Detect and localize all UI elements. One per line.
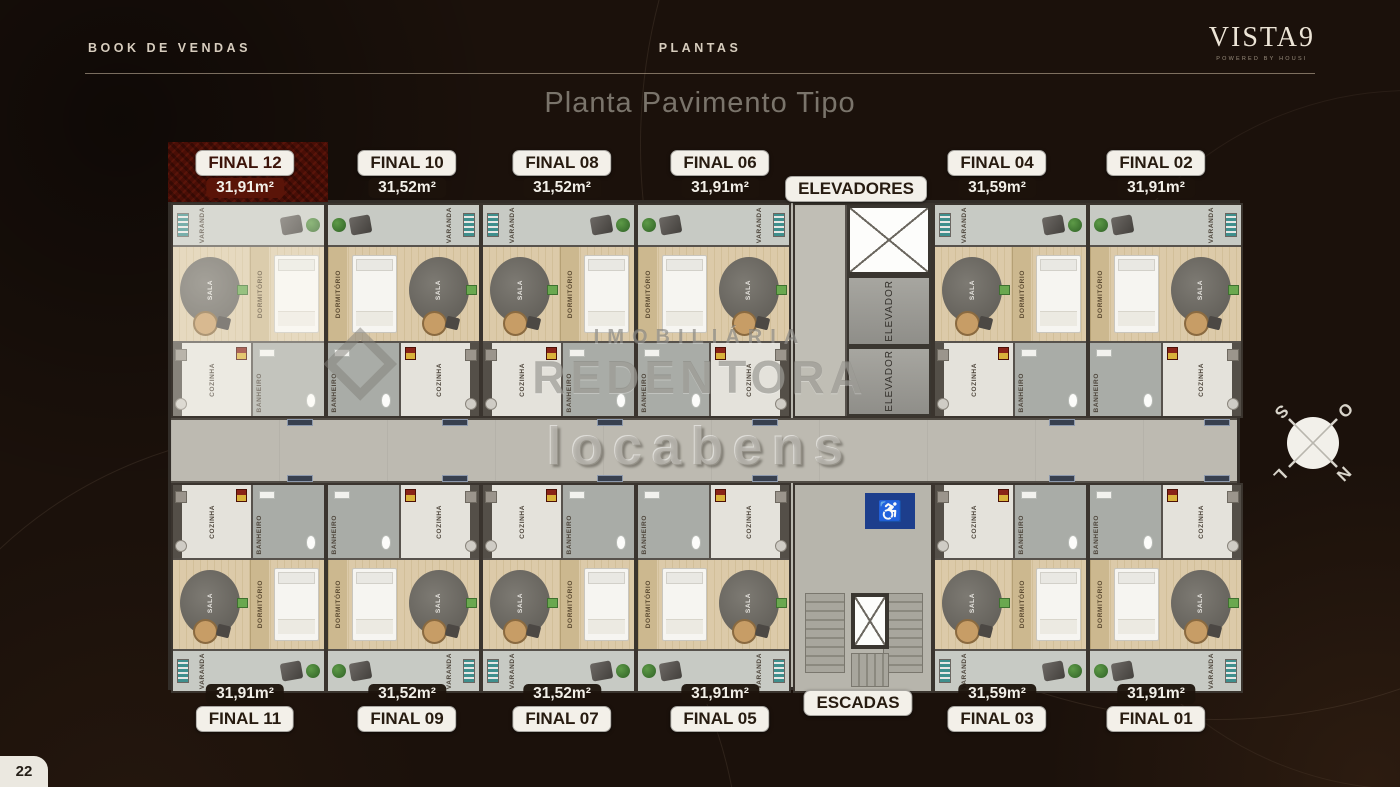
room-label-banheiro: BANHEIRO — [256, 373, 263, 412]
apartment-unit-final-12: VARANDA SALA DORMITÓRIO — [171, 203, 326, 418]
stove-icon — [485, 349, 497, 361]
unit-entry-door — [442, 419, 468, 426]
unit-entry-door — [597, 419, 623, 426]
chair-icon — [526, 624, 542, 639]
room-label-cozinha: COZINHA — [971, 363, 978, 397]
apartment-unit-final-05: VARANDA SALA DORMITÓRIO — [636, 483, 791, 693]
room-label-banheiro: BANHEIRO — [1018, 373, 1025, 412]
sofa-icon — [999, 285, 1010, 295]
room-label-banheiro: BANHEIRO — [641, 373, 648, 412]
sofa-icon — [237, 598, 248, 608]
bedroom-label-band: DORMITÓRIO — [638, 560, 657, 649]
bathroom-sink-icon — [259, 349, 275, 357]
balcony: VARANDA — [483, 205, 634, 247]
service-area: COZINHA BANHEIRO — [638, 485, 789, 560]
living-sleeping-area: SALA DORMITÓRIO — [935, 247, 1086, 341]
kitchen: COZINHA — [1161, 485, 1241, 558]
accessibility-sign: ♿ — [865, 493, 915, 529]
unit-tab-final-08[interactable]: FINAL 0831,52m² — [512, 150, 611, 198]
elevators-tab: ELEVADORES — [785, 176, 927, 202]
stove-icon — [465, 349, 477, 361]
decor-icon — [236, 347, 247, 360]
decor-icon — [1167, 347, 1178, 360]
decor-icon — [1167, 489, 1178, 502]
elevator-label: ELEVADOR — [884, 350, 895, 412]
unit-entry-door — [1049, 475, 1075, 482]
table-icon — [732, 619, 757, 644]
svg-text:O: O — [1334, 399, 1357, 422]
sink-icon — [1227, 398, 1239, 410]
sink-icon — [1227, 540, 1239, 552]
bathroom-sink-icon — [334, 349, 350, 357]
stove-icon — [175, 491, 187, 503]
unit-area-label: 31,52m² — [523, 178, 601, 198]
shelf-icon — [487, 213, 499, 237]
bedroom-label-band: DORMITÓRIO — [328, 560, 347, 649]
room-label-dormitorio: DORMITÓRIO — [257, 580, 264, 628]
living-room: SALA — [935, 560, 1012, 649]
bathroom-sink-icon — [644, 491, 660, 499]
unit-entry-door — [1049, 419, 1075, 426]
room-label-dormitorio: DORMITÓRIO — [1019, 270, 1026, 318]
unit-area-label: 31,91m² — [206, 684, 284, 704]
bed-icon — [584, 568, 629, 641]
bathroom: BANHEIRO — [1090, 485, 1161, 558]
living-room: SALA — [712, 560, 789, 649]
room-label-dormitorio: DORMITÓRIO — [1019, 580, 1026, 628]
plant-icon — [332, 664, 346, 678]
decor-icon — [715, 347, 726, 360]
unit-tab-final-09[interactable]: 31,52m²FINAL 09 — [357, 684, 456, 732]
unit-tab-final-11[interactable]: 31,91m²FINAL 11 — [196, 684, 294, 732]
kitchen: COZINHA — [399, 485, 479, 558]
living-room: SALA — [173, 560, 250, 649]
room-label-dormitorio: DORMITÓRIO — [645, 580, 652, 628]
toilet-icon — [1068, 535, 1078, 550]
kitchen: COZINHA — [709, 343, 789, 416]
section-title: PLANTAS — [0, 41, 1400, 55]
bathroom: BANHEIRO — [328, 485, 399, 558]
room-label-dormitorio: DORMITÓRIO — [645, 270, 652, 318]
unit-tab-final-05[interactable]: 31,91m²FINAL 05 — [670, 684, 769, 732]
sofa-icon — [776, 598, 787, 608]
service-area: COZINHA BANHEIRO — [328, 341, 479, 416]
unit-tab-final-10[interactable]: FINAL 1031,52m² — [357, 150, 456, 198]
floor-plan: VARANDA SALA DORMITÓRIO — [168, 200, 1240, 690]
room-label-dormitorio: DORMITÓRIO — [1097, 270, 1104, 318]
service-area: COZINHA BANHEIRO — [935, 341, 1086, 416]
shelf-icon — [773, 213, 785, 237]
room-label-sala: SALA — [1197, 593, 1204, 613]
plant-icon — [1094, 664, 1108, 678]
room-label-dormitorio: DORMITÓRIO — [567, 270, 574, 318]
bedroom: DORMITÓRIO — [638, 560, 712, 649]
room-label-cozinha: COZINHA — [209, 505, 216, 539]
table-icon — [193, 311, 218, 336]
kitchen: COZINHA — [399, 343, 479, 416]
table-icon — [955, 619, 980, 644]
bed-icon — [1114, 568, 1159, 641]
room-label-dormitorio: DORMITÓRIO — [257, 270, 264, 318]
living-sleeping-area: SALA DORMITÓRIO — [328, 560, 479, 649]
living-room: SALA — [483, 560, 560, 649]
chair-icon — [978, 624, 994, 639]
chair-icon — [659, 214, 683, 235]
room-label-sala: SALA — [435, 593, 442, 613]
decor-icon — [998, 489, 1009, 502]
toilet-icon — [691, 535, 701, 550]
bedroom-label-band: DORMITÓRIO — [1012, 247, 1031, 341]
unit-tab-final-04[interactable]: FINAL 0431,59m² — [947, 150, 1046, 198]
room-label-cozinha: COZINHA — [971, 505, 978, 539]
sink-icon — [485, 398, 497, 410]
plant-icon — [642, 218, 656, 232]
service-area: COZINHA BANHEIRO — [328, 485, 479, 560]
room-label-sala: SALA — [969, 593, 976, 613]
bathroom: BANHEIRO — [328, 343, 399, 416]
unit-name-label[interactable]: FINAL 10 — [357, 150, 456, 176]
unit-name-label[interactable]: FINAL 11 — [196, 706, 294, 732]
decor-icon — [998, 347, 1009, 360]
bed-icon — [274, 568, 319, 641]
unit-tab-final-12[interactable]: FINAL 1231,91m² — [195, 150, 294, 198]
decor-icon — [715, 489, 726, 502]
bathroom: BANHEIRO — [1015, 343, 1086, 416]
bedroom: DORMITÓRIO — [1090, 560, 1164, 649]
room-label-banheiro: BANHEIRO — [256, 515, 263, 554]
room-label-varanda: VARANDA — [1208, 207, 1215, 243]
sink-icon — [175, 398, 187, 410]
room-label-sala: SALA — [517, 280, 524, 300]
service-area: COZINHA BANHEIRO — [483, 485, 634, 560]
room-label-banheiro: BANHEIRO — [641, 515, 648, 554]
apartment-unit-final-06: VARANDA SALA DORMITÓRIO — [636, 203, 791, 418]
bathroom-sink-icon — [259, 491, 275, 499]
unit-name-label[interactable]: FINAL 05 — [670, 706, 769, 732]
chair-icon — [216, 624, 232, 639]
room-label-banheiro: BANHEIRO — [331, 515, 338, 554]
room-label-banheiro: BANHEIRO — [1093, 373, 1100, 412]
unit-area-label: 31,59m² — [958, 684, 1036, 704]
room-label-dormitorio: DORMITÓRIO — [567, 580, 574, 628]
chair-icon — [216, 316, 232, 331]
page-title: Planta Pavimento Tipo — [0, 87, 1400, 120]
chair-icon — [349, 660, 373, 681]
service-area: COZINHA BANHEIRO — [483, 341, 634, 416]
bedroom: DORMITÓRIO — [638, 247, 712, 341]
bedroom-label-band: DORMITÓRIO — [328, 247, 347, 341]
elevator-hall — [795, 205, 847, 416]
bathroom-sink-icon — [1021, 349, 1037, 357]
chair-icon — [978, 316, 994, 331]
room-label-sala: SALA — [207, 280, 214, 300]
bathroom-sink-icon — [644, 349, 660, 357]
chair-icon — [1042, 660, 1066, 681]
room-label-sala: SALA — [969, 280, 976, 300]
bathroom-sink-icon — [1096, 491, 1112, 499]
room-label-cozinha: COZINHA — [436, 363, 443, 397]
living-sleeping-area: SALA DORMITÓRIO — [935, 560, 1086, 649]
living-room: SALA — [402, 560, 479, 649]
table-icon — [422, 311, 447, 336]
table-icon — [503, 311, 528, 336]
bed-icon — [662, 568, 707, 641]
stair-treads-lower — [851, 653, 889, 687]
balcony: VARANDA — [328, 205, 479, 247]
kitchen: COZINHA — [1161, 343, 1241, 416]
room-label-varanda: VARANDA — [756, 207, 763, 243]
bed-icon — [1036, 568, 1081, 641]
bedroom-label-band: DORMITÓRIO — [250, 247, 269, 341]
room-label-sala: SALA — [517, 593, 524, 613]
plant-icon — [1068, 664, 1082, 678]
unit-entry-door — [287, 475, 313, 482]
table-icon — [1184, 311, 1209, 336]
sales-book-page: BOOK DE VENDAS PLANTAS VISTA9 POWERED BY… — [0, 0, 1400, 787]
unit-name-label[interactable]: FINAL 09 — [357, 706, 456, 732]
living-sleeping-area: SALA DORMITÓRIO — [328, 247, 479, 341]
shelf-icon — [177, 659, 189, 683]
chair-icon — [1111, 214, 1135, 235]
chair-icon — [590, 214, 614, 235]
toilet-icon — [616, 535, 626, 550]
chair-icon — [754, 624, 770, 639]
unit-name-label[interactable]: FINAL 06 — [670, 150, 769, 176]
elevator-label: ELEVADOR — [884, 280, 895, 342]
unit-area-label: 31,91m² — [681, 684, 759, 704]
plant-icon — [306, 218, 320, 232]
sink-icon — [775, 398, 787, 410]
shelf-icon — [1225, 213, 1237, 237]
unit-area-label: 31,59m² — [958, 178, 1036, 198]
balcony: VARANDA — [638, 205, 789, 247]
toilet-icon — [381, 535, 391, 550]
unit-area-label: 31,91m² — [1117, 684, 1195, 704]
bed-icon — [1114, 255, 1159, 333]
room-label-cozinha: COZINHA — [746, 505, 753, 539]
apartment-unit-final-03: VARANDA SALA DORMITÓRIO — [933, 483, 1088, 693]
bedroom-label-band: DORMITÓRIO — [560, 247, 579, 341]
living-sleeping-area: SALA DORMITÓRIO — [483, 560, 634, 649]
unit-tab-final-01[interactable]: 31,91m²FINAL 01 — [1106, 684, 1205, 732]
plant-icon — [642, 664, 656, 678]
room-label-banheiro: BANHEIRO — [1093, 515, 1100, 554]
chair-icon — [349, 214, 373, 235]
room-label-cozinha: COZINHA — [746, 363, 753, 397]
sofa-icon — [776, 285, 787, 295]
unit-name-label[interactable]: FINAL 08 — [512, 150, 611, 176]
decor-icon — [546, 489, 557, 502]
apartment-unit-final-09: VARANDA SALA DORMITÓRIO — [326, 483, 481, 693]
bedroom-label-band: DORMITÓRIO — [638, 247, 657, 341]
room-label-dormitorio: DORMITÓRIO — [1097, 580, 1104, 628]
stair-core: ♿ — [793, 483, 933, 693]
header-divider — [85, 73, 1315, 74]
balcony: VARANDA — [935, 205, 1086, 247]
stove-icon — [175, 349, 187, 361]
stove-icon — [937, 349, 949, 361]
living-sleeping-area: SALA DORMITÓRIO — [483, 247, 634, 341]
service-area: COZINHA BANHEIRO — [935, 485, 1086, 560]
room-label-varanda: VARANDA — [446, 207, 453, 243]
sink-icon — [465, 540, 477, 552]
elevator-cab: ELEVADOR — [847, 346, 931, 417]
service-area: COZINHA BANHEIRO — [173, 341, 324, 416]
room-label-cozinha: COZINHA — [519, 363, 526, 397]
sofa-icon — [466, 598, 477, 608]
sink-icon — [775, 540, 787, 552]
table-icon — [503, 619, 528, 644]
compass-rose: N S L O — [1228, 358, 1398, 528]
bathroom: BANHEIRO — [1090, 343, 1161, 416]
sink-icon — [937, 398, 949, 410]
shelf-icon — [939, 213, 951, 237]
unit-name-label[interactable]: FINAL 01 — [1106, 706, 1205, 732]
shelf-icon — [177, 213, 189, 237]
bed-icon — [662, 255, 707, 333]
toilet-icon — [616, 393, 626, 408]
bed-icon — [352, 568, 397, 641]
toilet-icon — [381, 393, 391, 408]
bathroom-sink-icon — [569, 491, 585, 499]
sofa-icon — [547, 285, 558, 295]
plant-icon — [332, 218, 346, 232]
sofa-icon — [999, 598, 1010, 608]
chair-icon — [526, 316, 542, 331]
shelf-icon — [463, 659, 475, 683]
bathroom-sink-icon — [1021, 491, 1037, 499]
unit-tab-final-03[interactable]: 31,59m²FINAL 03 — [947, 684, 1046, 732]
living-sleeping-area: SALA DORMITÓRIO — [638, 560, 789, 649]
bed-icon — [1036, 255, 1081, 333]
unit-area-label: 31,52m² — [523, 684, 601, 704]
stove-icon — [1227, 349, 1239, 361]
unit-name-label[interactable]: FINAL 04 — [947, 150, 1046, 176]
bedroom: DORMITÓRIO — [1012, 247, 1086, 341]
bedroom-label-band: DORMITÓRIO — [1090, 247, 1109, 341]
unit-name-label[interactable]: FINAL 03 — [947, 706, 1046, 732]
elevator-core: ELEVADOR ELEVADOR — [793, 203, 933, 418]
chair-icon — [754, 316, 770, 331]
room-label-cozinha: COZINHA — [1198, 505, 1205, 539]
room-label-dormitorio: DORMITÓRIO — [335, 270, 342, 318]
room-label-sala: SALA — [207, 593, 214, 613]
table-icon — [422, 619, 447, 644]
elevator-cab: ELEVADOR — [847, 275, 931, 346]
chair-icon — [280, 214, 304, 235]
sofa-icon — [237, 285, 248, 295]
bedroom: DORMITÓRIO — [250, 247, 324, 341]
apartment-unit-final-10: VARANDA SALA DORMITÓRIO — [326, 203, 481, 418]
service-area: COZINHA BANHEIRO — [173, 485, 324, 560]
living-room: SALA — [402, 247, 479, 341]
bedroom-label-band: DORMITÓRIO — [560, 560, 579, 649]
bedroom: DORMITÓRIO — [1090, 247, 1164, 341]
toilet-icon — [1143, 535, 1153, 550]
kitchen: COZINHA — [935, 343, 1015, 416]
unit-entry-door — [752, 475, 778, 482]
bathroom-sink-icon — [334, 491, 350, 499]
unit-area-label: 31,52m² — [368, 684, 446, 704]
sink-icon — [485, 540, 497, 552]
unit-name-label[interactable]: FINAL 12 — [195, 150, 294, 176]
plant-icon — [306, 664, 320, 678]
balcony: VARANDA — [173, 205, 324, 247]
stove-icon — [465, 491, 477, 503]
elevators-tab-label: ELEVADORES — [785, 176, 927, 202]
table-icon — [732, 311, 757, 336]
chair-icon — [444, 624, 460, 639]
bathroom: BANHEIRO — [638, 343, 709, 416]
table-icon — [193, 619, 218, 644]
page-number: 22 — [16, 763, 33, 780]
room-label-varanda: VARANDA — [1208, 653, 1215, 689]
room-label-varanda: VARANDA — [961, 207, 968, 243]
bedroom: DORMITÓRIO — [1012, 560, 1086, 649]
room-label-banheiro: BANHEIRO — [566, 515, 573, 554]
sofa-icon — [1228, 598, 1239, 608]
kitchen: COZINHA — [935, 485, 1015, 558]
stairs-tab: ESCADAS — [803, 690, 912, 716]
bathroom: BANHEIRO — [253, 343, 324, 416]
living-room: SALA — [1164, 560, 1241, 649]
stove-icon — [1227, 491, 1239, 503]
unit-name-label[interactable]: FINAL 02 — [1106, 150, 1205, 176]
unit-tab-final-02[interactable]: FINAL 0231,91m² — [1106, 150, 1205, 198]
room-label-cozinha: COZINHA — [209, 363, 216, 397]
service-area: COZINHA BANHEIRO — [638, 341, 789, 416]
bathroom: BANHEIRO — [563, 485, 634, 558]
unit-entry-door — [442, 475, 468, 482]
apartment-unit-final-11: VARANDA SALA DORMITÓRIO — [171, 483, 326, 693]
toilet-icon — [1068, 393, 1078, 408]
room-label-cozinha: COZINHA — [519, 505, 526, 539]
living-sleeping-area: SALA DORMITÓRIO — [173, 560, 324, 649]
balcony: VARANDA — [1090, 205, 1241, 247]
brand-logo-text: VISTA9 — [1209, 22, 1315, 54]
bedroom: DORMITÓRIO — [560, 560, 634, 649]
plant-icon — [1094, 218, 1108, 232]
toilet-icon — [1143, 393, 1153, 408]
sofa-icon — [1228, 285, 1239, 295]
unit-area-label: 31,91m² — [1117, 178, 1195, 198]
living-sleeping-area: SALA DORMITÓRIO — [1090, 247, 1241, 341]
chair-icon — [1206, 624, 1222, 639]
bathroom: BANHEIRO — [253, 485, 324, 558]
page-number-badge: 22 — [0, 756, 48, 787]
unit-tab-final-07[interactable]: 31,52m²FINAL 07 — [512, 684, 611, 732]
living-room: SALA — [935, 247, 1012, 341]
living-room: SALA — [712, 247, 789, 341]
apartment-unit-final-08: VARANDA SALA DORMITÓRIO — [481, 203, 636, 418]
unit-name-label[interactable]: FINAL 07 — [512, 706, 611, 732]
decor-icon — [405, 489, 416, 502]
chair-icon — [659, 660, 683, 681]
bedroom: DORMITÓRIO — [250, 560, 324, 649]
unit-tab-final-06[interactable]: FINAL 0631,91m² — [670, 150, 769, 198]
shelf-icon — [463, 213, 475, 237]
bed-icon — [584, 255, 629, 333]
room-label-banheiro: BANHEIRO — [331, 373, 338, 412]
service-area: COZINHA BANHEIRO — [1090, 341, 1241, 416]
corridor — [171, 418, 1237, 483]
room-label-varanda: VARANDA — [199, 207, 206, 243]
toilet-icon — [691, 393, 701, 408]
chair-icon — [1206, 316, 1222, 331]
decor-icon — [236, 489, 247, 502]
room-label-sala: SALA — [745, 593, 752, 613]
room-label-banheiro: BANHEIRO — [1018, 515, 1025, 554]
